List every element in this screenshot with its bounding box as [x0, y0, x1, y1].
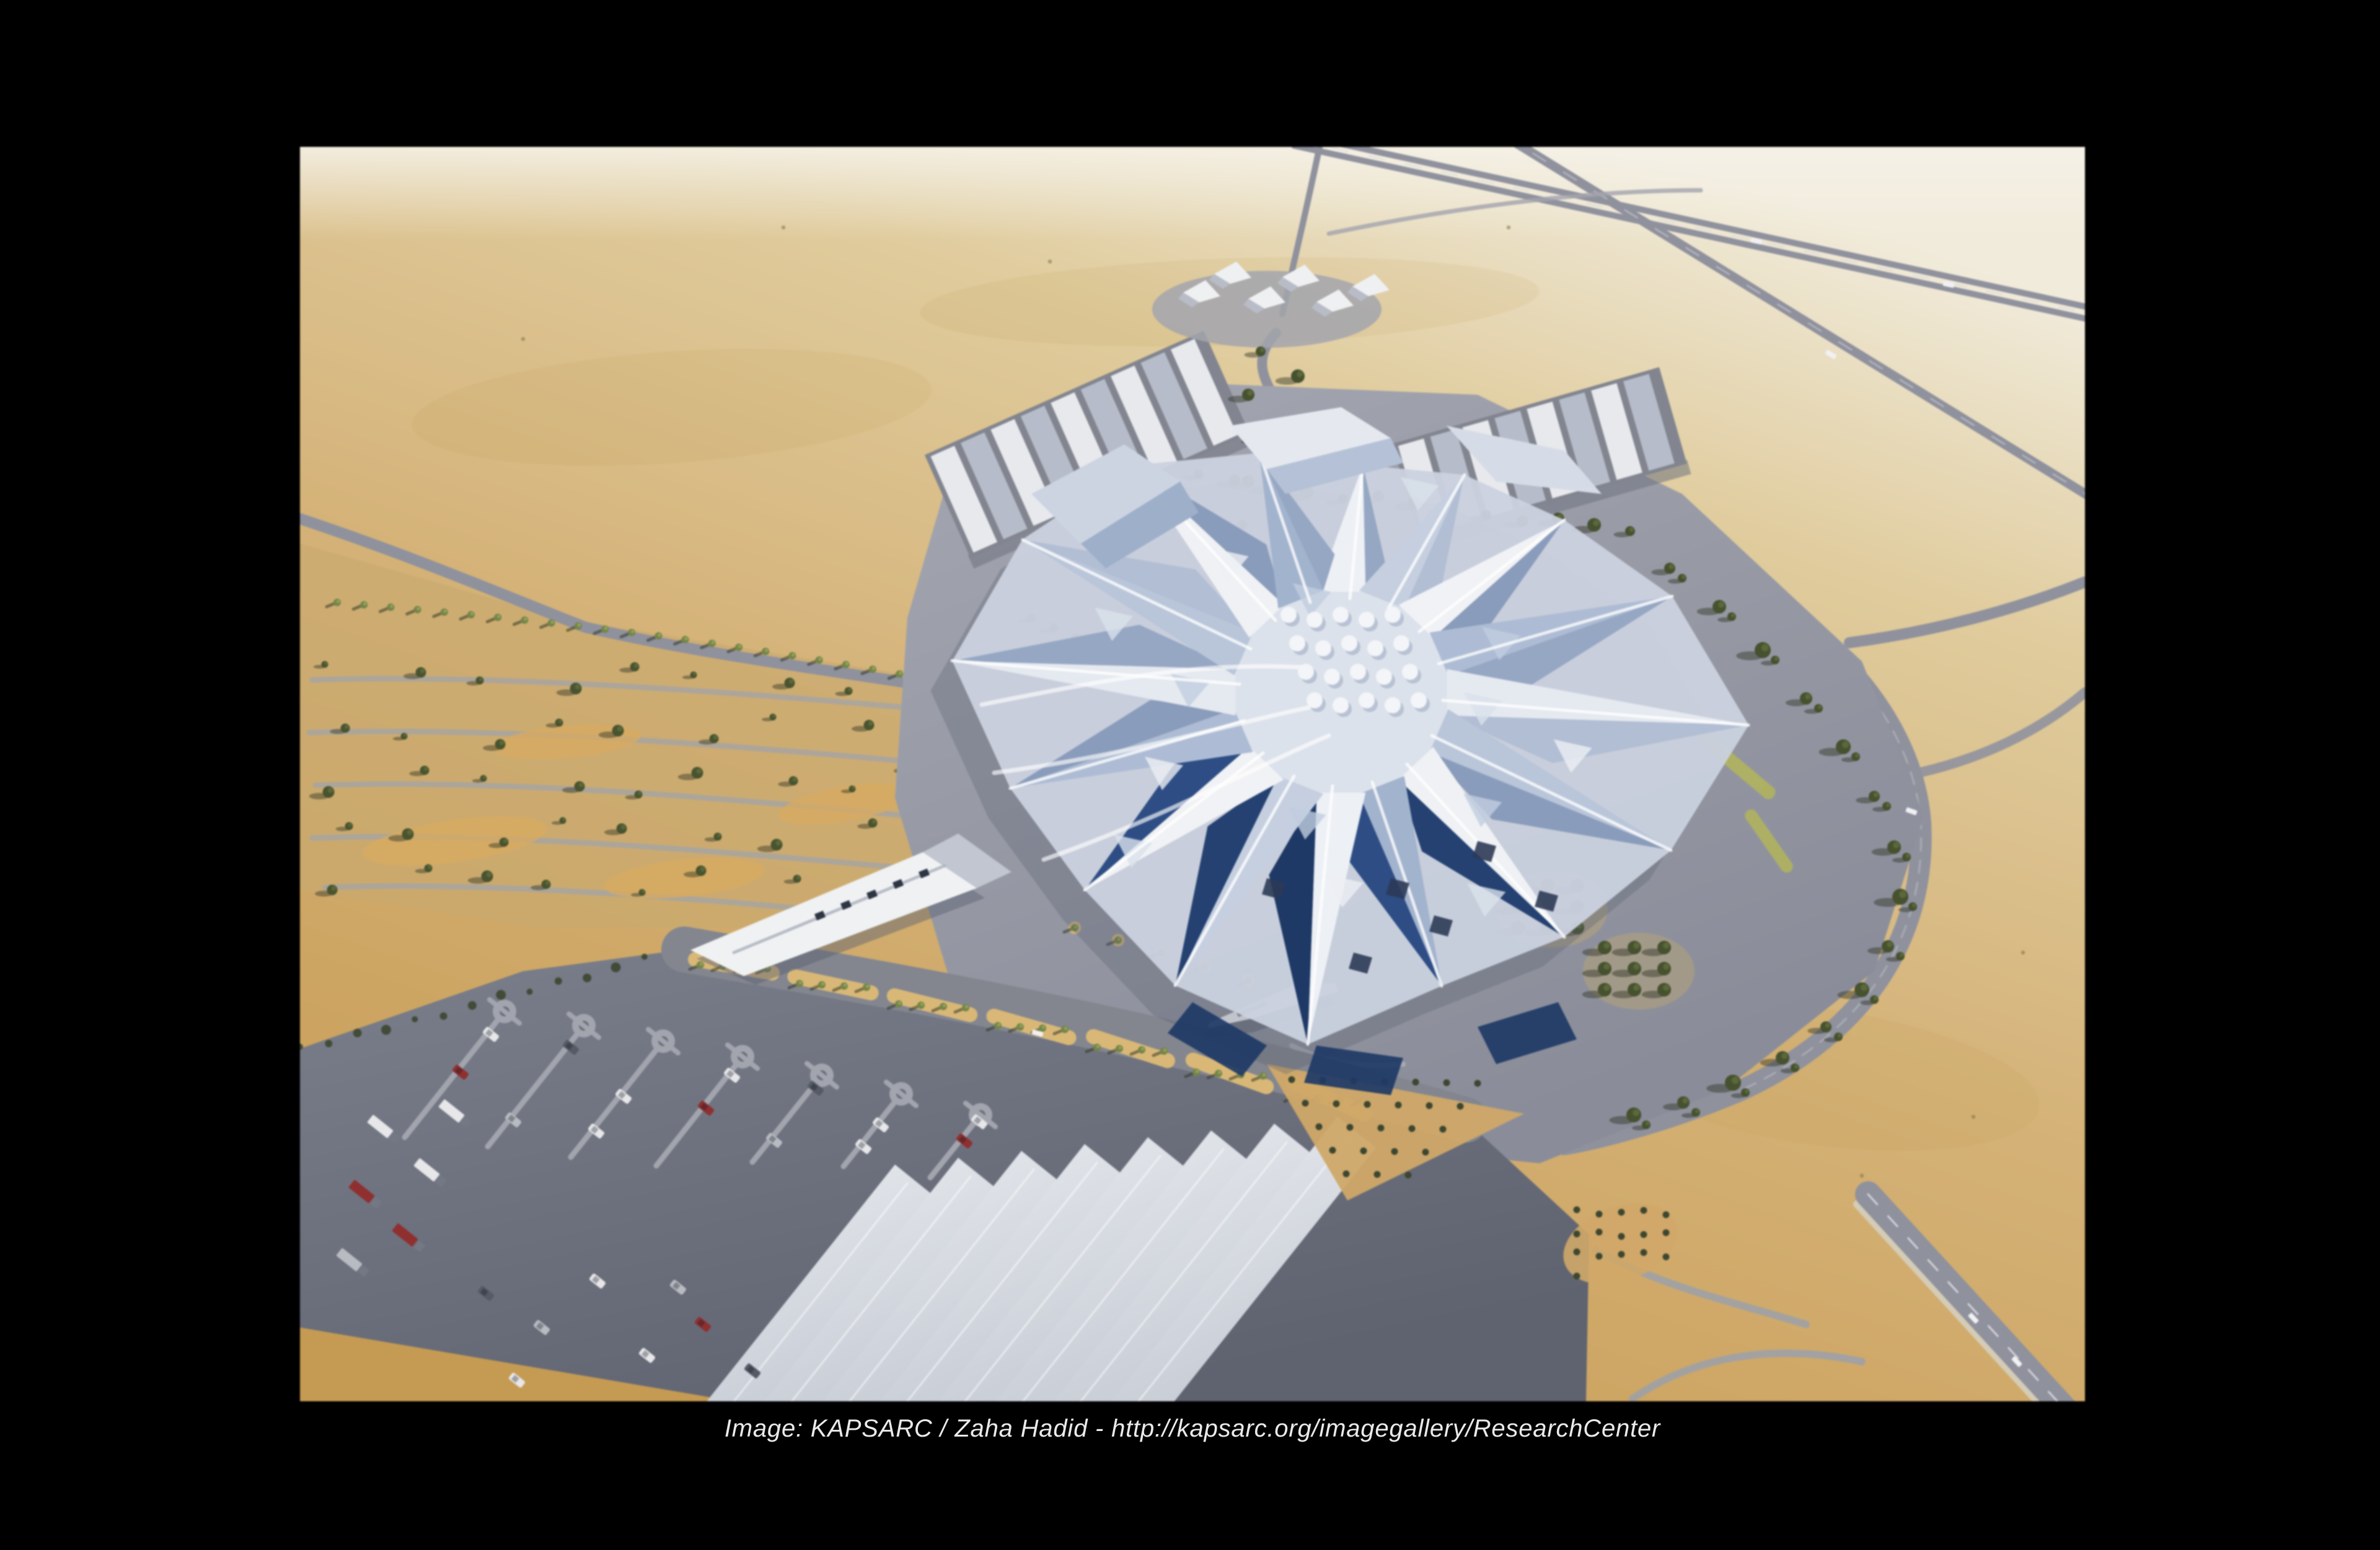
kapsarc-aerial-photo — [300, 147, 2085, 1401]
image-credit-caption: Image: KAPSARC / Zaha Hadid - http://kap… — [300, 1414, 2085, 1443]
presentation-slide: Image: KAPSARC / Zaha Hadid - http://kap… — [0, 0, 2380, 1550]
kapsarc-aerial-rendering — [300, 147, 2085, 1401]
